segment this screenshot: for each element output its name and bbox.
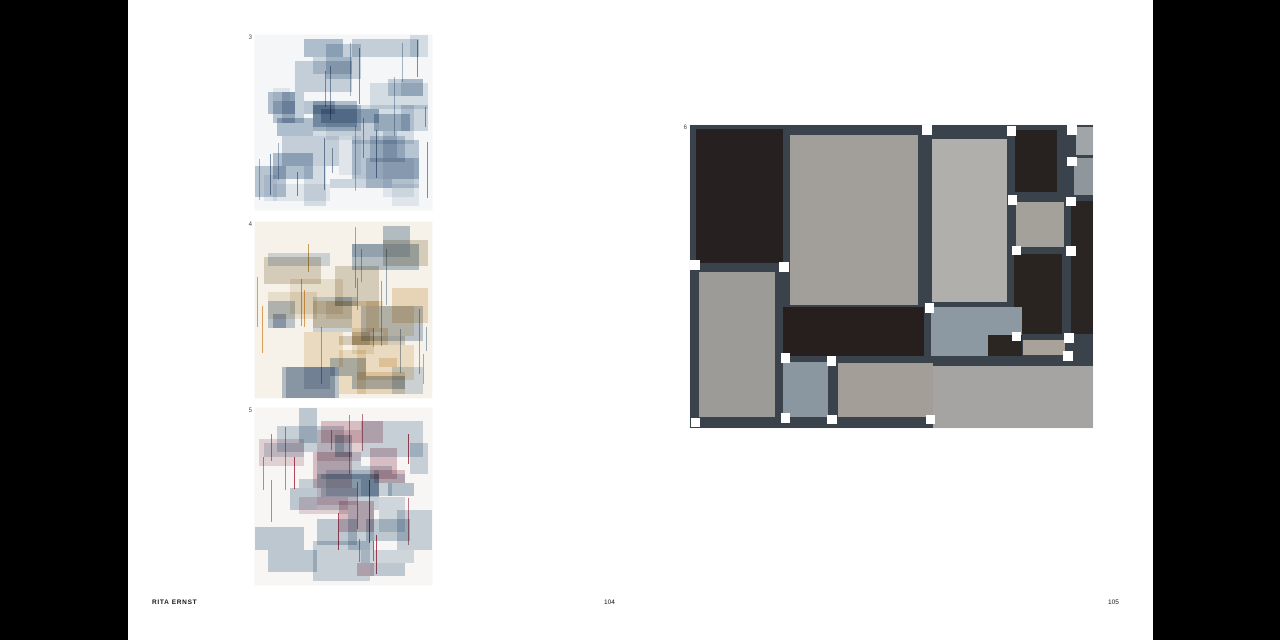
painted-line	[357, 482, 358, 528]
painted-line	[332, 148, 333, 172]
painted-rectangle	[352, 39, 418, 57]
painted-line	[369, 480, 370, 543]
painted-rectangle	[397, 510, 432, 550]
painted-line	[271, 434, 272, 461]
painted-line	[408, 498, 409, 545]
painted-rectangle	[273, 314, 286, 327]
white-gap	[781, 413, 791, 423]
artwork-image-4	[255, 222, 432, 398]
painted-line	[338, 513, 339, 550]
painted-line	[257, 277, 258, 327]
painted-rectangle	[388, 79, 423, 97]
painting-cell	[1023, 340, 1065, 355]
painted-line	[330, 66, 331, 121]
painted-rectangle	[273, 88, 291, 101]
painted-line	[426, 327, 427, 351]
painted-line	[325, 71, 326, 107]
painting-cell	[1071, 201, 1093, 334]
painted-line	[400, 329, 401, 372]
painted-line	[376, 535, 377, 574]
painted-line	[285, 427, 286, 489]
painted-line	[427, 142, 428, 198]
painted-line	[402, 43, 403, 82]
painted-line	[259, 159, 260, 200]
painting-cell	[783, 362, 828, 417]
painted-line	[308, 244, 309, 272]
painted-line	[373, 541, 374, 561]
painted-rectangle	[361, 109, 379, 122]
painting-cell	[696, 129, 783, 263]
painted-line	[355, 227, 356, 288]
painted-rectangle	[361, 550, 414, 563]
white-gap	[926, 415, 936, 425]
painted-line	[301, 279, 302, 326]
white-gap	[690, 260, 700, 270]
painting-cell	[1016, 202, 1064, 247]
artwork-image-3	[255, 35, 432, 210]
painted-line	[294, 457, 295, 489]
figure-label-3: 3	[243, 35, 252, 42]
painted-line	[357, 278, 358, 310]
white-gap	[1008, 195, 1018, 205]
painted-line	[263, 457, 264, 490]
painted-line	[270, 154, 271, 195]
painted-line	[361, 249, 362, 282]
painted-line	[381, 281, 382, 346]
white-gap	[1063, 351, 1073, 361]
painted-line	[271, 480, 272, 522]
painted-line	[349, 415, 350, 474]
white-gap	[1066, 246, 1076, 256]
painted-line	[425, 107, 426, 127]
painting-cell	[790, 135, 918, 306]
painted-line	[331, 430, 332, 451]
painted-rectangle	[313, 101, 357, 127]
painted-line	[417, 40, 418, 77]
painting-cell	[932, 139, 1007, 303]
white-gap	[1067, 157, 1077, 167]
artwork-image-5	[255, 408, 432, 585]
painted-line	[359, 48, 360, 104]
painted-rectangle	[304, 332, 344, 367]
painting-cell	[1074, 158, 1093, 194]
painted-rectangle	[401, 105, 428, 131]
painted-rectangle	[304, 166, 326, 205]
figure-label-5: 5	[243, 408, 252, 415]
white-gap	[781, 353, 791, 363]
painted-rectangle	[290, 488, 317, 510]
white-gap	[827, 415, 837, 425]
painting-cell	[783, 307, 923, 356]
painted-rectangle	[255, 527, 304, 549]
white-gap	[1067, 125, 1077, 135]
painted-line	[376, 130, 377, 178]
painted-rectangle	[268, 550, 317, 572]
painted-line	[321, 327, 322, 384]
painted-rectangle	[326, 301, 353, 319]
painting-cell	[933, 366, 1093, 428]
painted-line	[363, 118, 364, 158]
painted-line	[359, 539, 360, 561]
white-gap	[1012, 246, 1022, 256]
figure-label-4: 4	[243, 222, 252, 229]
painted-rectangle	[330, 179, 392, 188]
painted-rectangle	[383, 306, 414, 337]
painted-rectangle	[361, 421, 423, 456]
white-gap	[1012, 332, 1022, 342]
painted-line	[262, 306, 263, 353]
painted-line	[394, 77, 395, 136]
white-gap	[691, 418, 701, 428]
painted-line	[362, 414, 363, 451]
white-gap	[1066, 197, 1076, 207]
painted-rectangle	[255, 505, 282, 527]
white-gap	[1064, 333, 1074, 343]
painting-cell	[1076, 127, 1093, 154]
painting-cell	[1015, 130, 1057, 192]
painted-rectangle	[304, 367, 331, 389]
painted-rectangle	[264, 257, 322, 283]
white-gap	[779, 262, 789, 272]
painted-line	[373, 328, 374, 347]
painted-line	[419, 309, 420, 374]
painting-cell	[838, 363, 933, 417]
artworks-layer: 3456	[0, 0, 1280, 640]
painted-line	[297, 172, 298, 196]
painted-line	[324, 138, 325, 190]
painted-line	[423, 354, 424, 384]
painted-rectangle	[352, 332, 370, 345]
artwork-image-6	[690, 125, 1093, 428]
figure-label-6: 6	[678, 125, 687, 132]
painted-line	[386, 249, 387, 305]
white-gap	[1007, 126, 1017, 136]
painted-line	[350, 43, 351, 95]
painted-line	[304, 290, 305, 327]
painted-rectangle	[383, 240, 427, 266]
white-gap	[827, 356, 837, 366]
painted-line	[408, 434, 409, 464]
screenshot-canvas: RITA ERNST 104 105 3456	[0, 0, 1280, 640]
painted-line	[355, 126, 356, 190]
white-gap	[922, 125, 932, 135]
painting-cell	[699, 272, 776, 417]
painted-line	[278, 143, 279, 180]
white-gap	[925, 303, 935, 313]
